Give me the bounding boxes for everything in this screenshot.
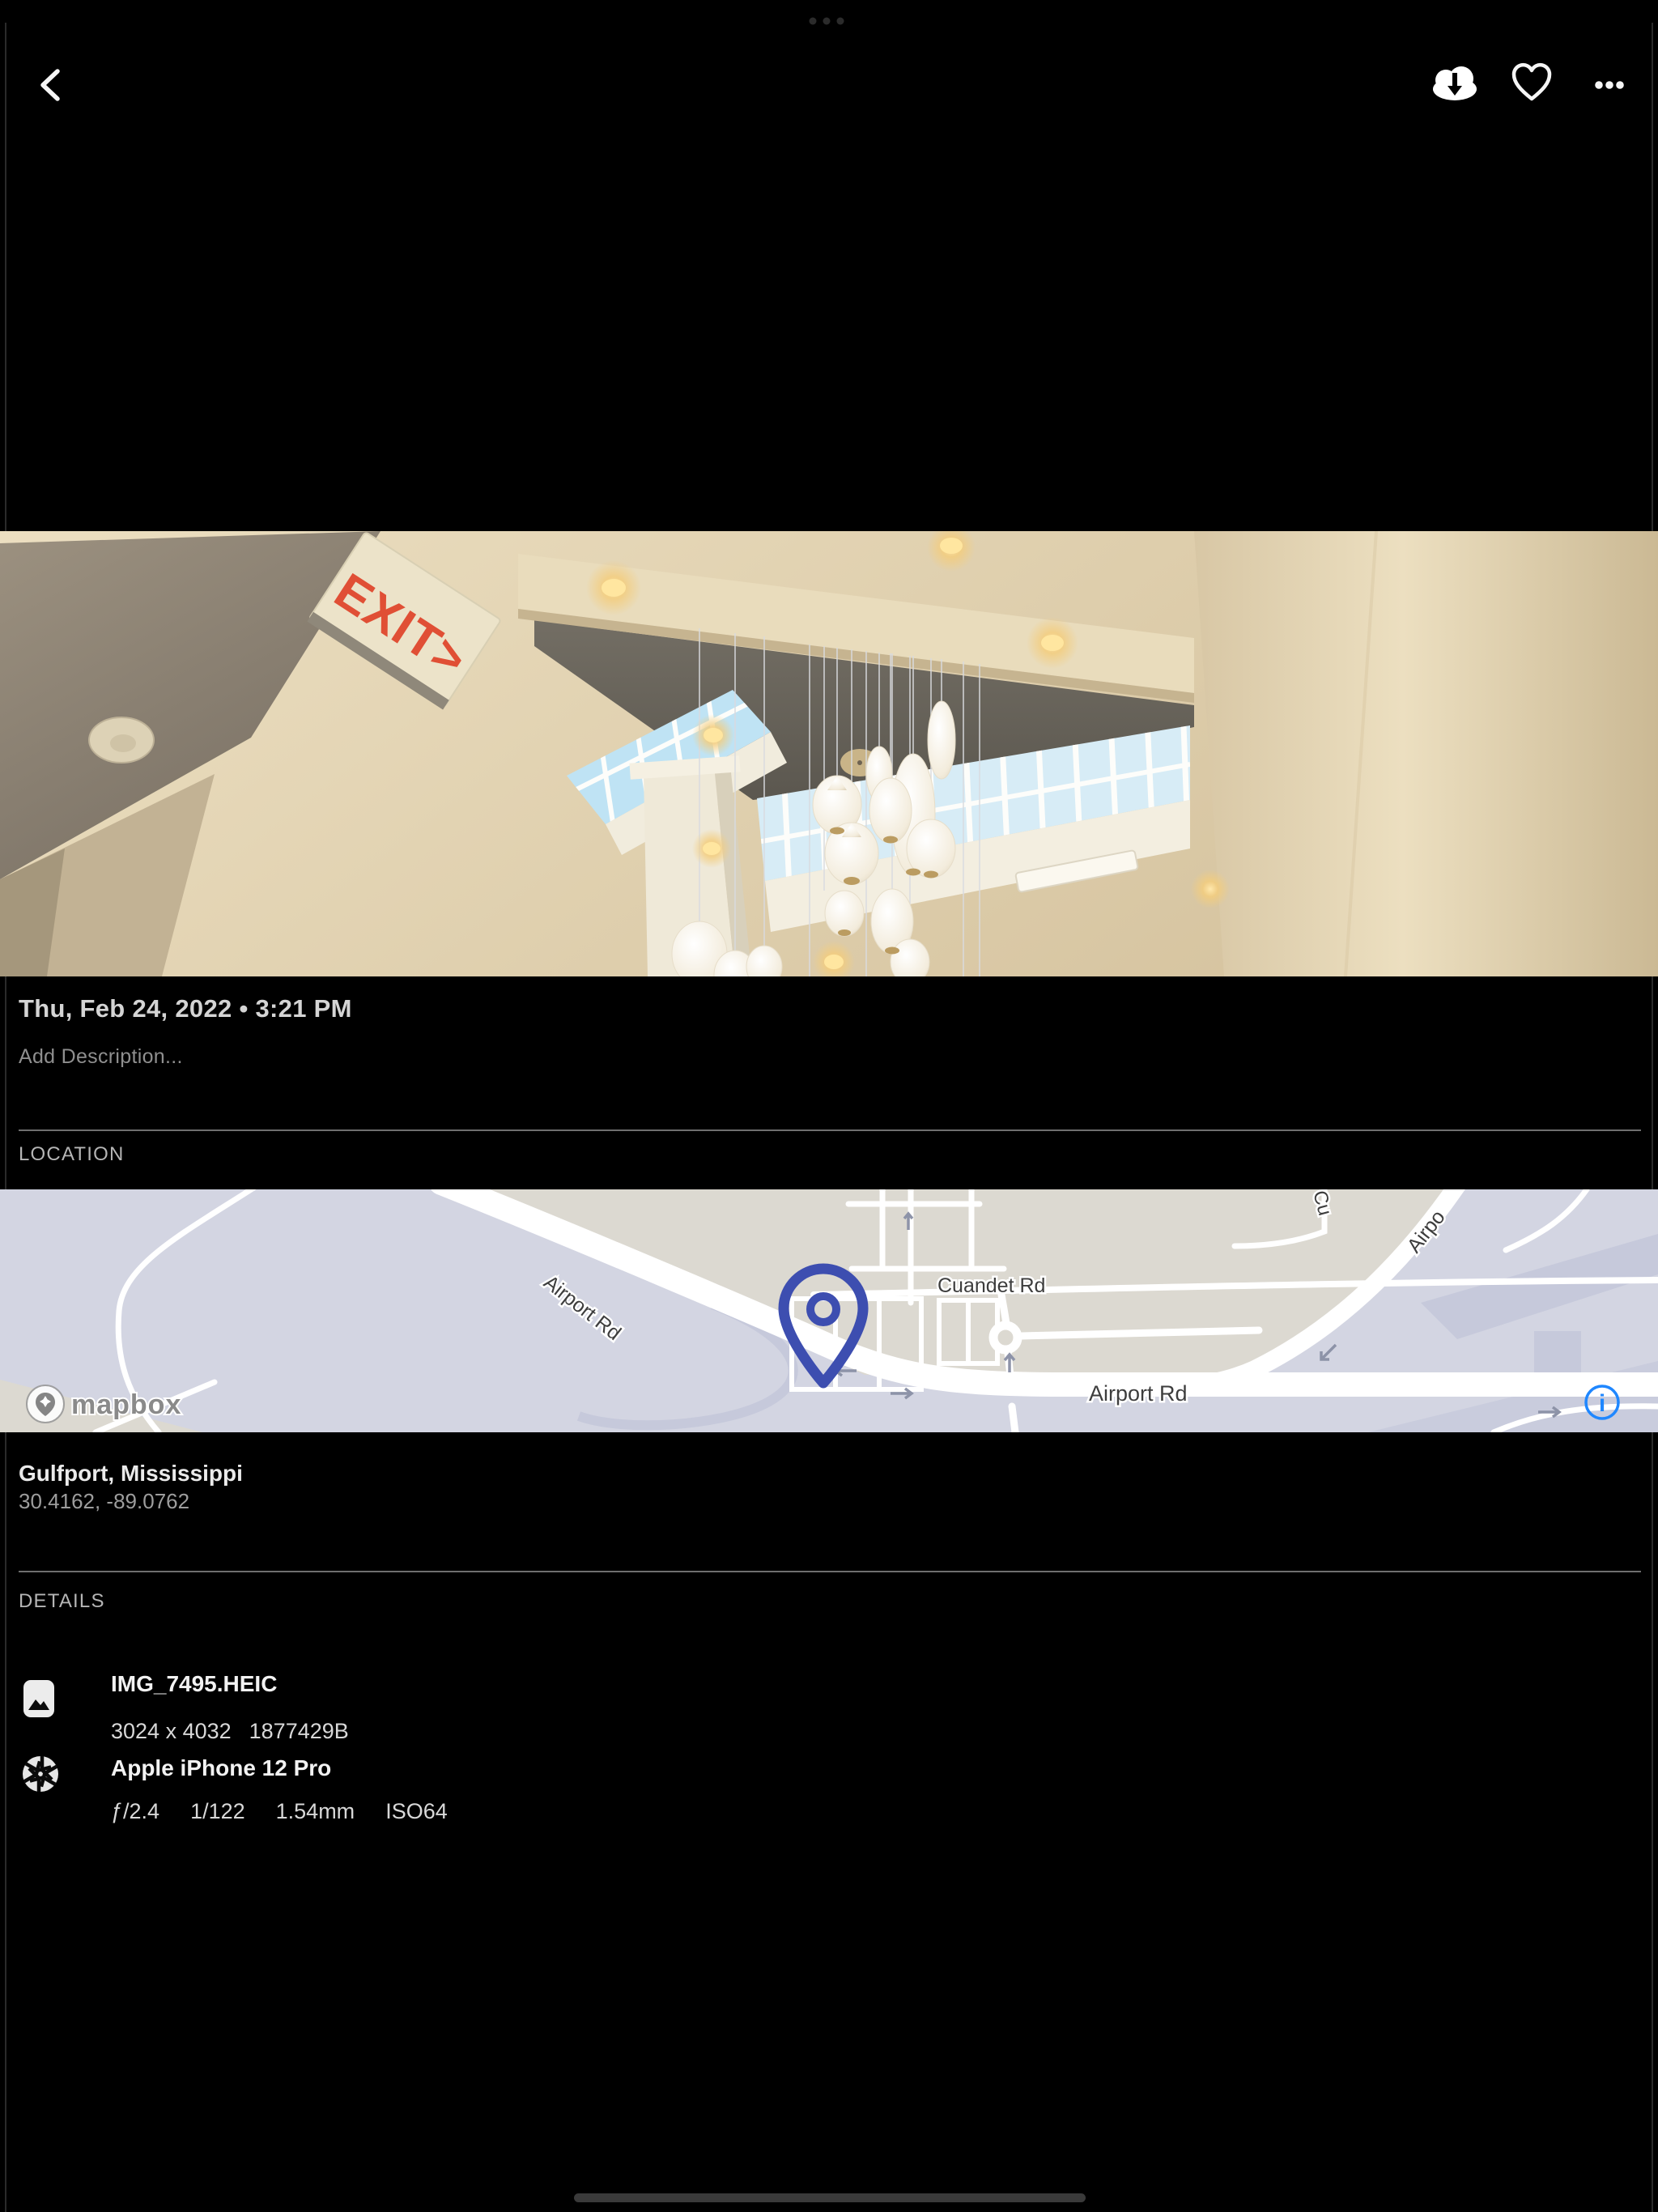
aperture-icon (20, 1754, 61, 1794)
file-meta: 3024 x 40321877429B (111, 1719, 349, 1744)
details-section-label: DETAILS (19, 1590, 105, 1613)
location-place: Gulfport, Mississippi (19, 1461, 243, 1487)
camera-shutter: 1/122 (190, 1799, 245, 1823)
multitask-indicator-dots (810, 18, 844, 25)
photo-datetime: Thu, Feb 24, 2022 • 3:21 PM (19, 994, 352, 1023)
map-label-cuandet-rd: Cuandet Rd (937, 1274, 1045, 1297)
home-indicator[interactable] (574, 2193, 1086, 2202)
camera-name: Apple iPhone 12 Pro (111, 1755, 331, 1781)
file-dimensions: 3024 x 4032 (111, 1719, 232, 1743)
smoke-detector (89, 717, 154, 763)
location-section-label: LOCATION (19, 1143, 125, 1166)
favorite-button[interactable] (1514, 65, 1550, 99)
camera-specs: ƒ/2.41/1221.54mmISO64 (111, 1799, 448, 1824)
photo-detail-screen: { "statusbar": { "multitask_dots": "• • … (0, 0, 1658, 2212)
divider-details (19, 1571, 1641, 1572)
camera-aperture: ƒ/2.4 (111, 1799, 159, 1823)
screen-edge-left (5, 23, 6, 2212)
camera-focal-length: 1.54mm (276, 1799, 355, 1823)
location-coordinates: 30.4162, -89.0762 (19, 1489, 189, 1514)
download-button[interactable] (1433, 66, 1477, 100)
screen-edge-right (1652, 23, 1653, 2212)
toolbar (0, 0, 1658, 130)
chevron-left-icon (43, 71, 57, 99)
camera-iso: ISO64 (385, 1799, 448, 1823)
heart-icon (1514, 65, 1550, 99)
mapbox-logo[interactable]: mapbox (27, 1385, 181, 1423)
more-button[interactable] (1595, 81, 1624, 89)
cloud-download-icon (1433, 66, 1477, 100)
divider-location (19, 1129, 1641, 1131)
back-button[interactable] (43, 71, 57, 99)
info-icon: i (1599, 1390, 1605, 1417)
add-description-field[interactable]: Add Description... (19, 1045, 183, 1069)
photo-right-wall (1194, 531, 1658, 976)
file-name: IMG_7495.HEIC (111, 1671, 277, 1697)
map-label-airport-rd-main: Airport Rd (1089, 1381, 1188, 1406)
mapbox-logo-text: mapbox (71, 1389, 181, 1420)
file-size: 1877429B (249, 1719, 349, 1743)
file-icon (22, 1678, 57, 1720)
more-dots-icon (1595, 81, 1624, 89)
location-map[interactable]: Airport Rd Cuandet Rd Airport Rd Cu Airp… (0, 1189, 1658, 1432)
photo-viewer[interactable]: EXIT> (0, 531, 1658, 976)
